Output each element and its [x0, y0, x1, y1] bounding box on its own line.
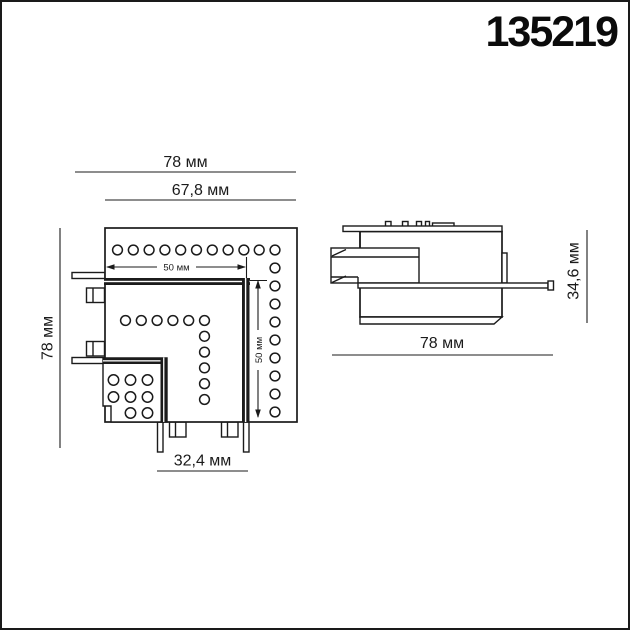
technical-drawing-sheet: 135219: [0, 0, 630, 630]
side-right-step: [502, 253, 507, 283]
dim-side-width: 78 мм: [332, 335, 553, 355]
dim-label-slot-height: 50 мм: [254, 337, 265, 363]
connector-socket: [331, 248, 419, 283]
dimension-drawing: 78 мм 67,8 мм 78 мм 50 мм: [0, 0, 630, 630]
dim-label-outer-width: 78 мм: [163, 154, 207, 171]
dim-label-side-width: 78 мм: [420, 335, 464, 352]
side-bottom-strip: [360, 317, 502, 324]
dim-label-inner-width: 67,8 мм: [172, 182, 230, 199]
dim-top-outer-width: 78 мм: [75, 154, 296, 172]
holes-top-row: [113, 245, 280, 255]
holes-right-column: [270, 263, 280, 417]
corner-module: [103, 358, 167, 423]
bottom-contact-pins: [158, 422, 250, 452]
top-view: 78 мм 67,8 мм 78 мм 50 мм: [40, 154, 298, 471]
dim-label-connector-width: 32,4 мм: [174, 453, 232, 470]
side-view: 78 мм 34,6 мм: [331, 222, 587, 356]
left-contact-pins: [72, 273, 105, 364]
dim-top-inner-width: 67,8 мм: [105, 182, 296, 200]
dim-label-outer-height: 78 мм: [40, 316, 57, 360]
dim-label-slot-width: 50 мм: [163, 263, 189, 274]
mounting-flange: [358, 281, 554, 290]
dim-left-outer-height: 78 мм: [40, 228, 61, 448]
dim-connector-width: 32,4 мм: [157, 453, 248, 472]
dim-side-height: 34,6 мм: [566, 230, 588, 323]
dim-label-side-height: 34,6 мм: [566, 242, 583, 300]
